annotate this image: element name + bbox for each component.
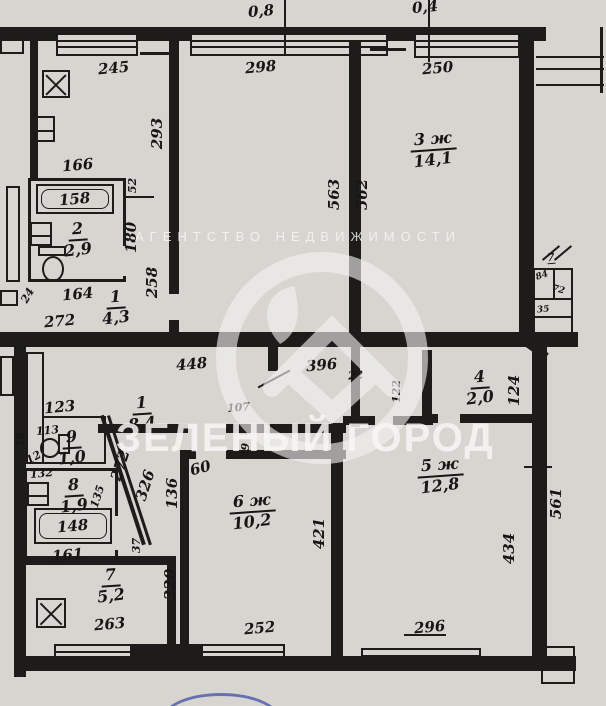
- door-opening: [114, 516, 120, 550]
- sink-symbol: [33, 116, 55, 142]
- room-label-bath-upper: 2 2,9: [58, 220, 98, 258]
- room-label-wc: 9 1,0: [52, 428, 92, 466]
- sink-symbol: [30, 222, 52, 246]
- dim-tub-upper: 158: [59, 190, 92, 208]
- dim-room6-depth: 421: [312, 518, 327, 549]
- wall-segment: [600, 27, 603, 93]
- wall-segment: [169, 40, 179, 294]
- room-label-room4: 4 2,0: [458, 368, 502, 406]
- dim-room3-depth: 562: [355, 179, 370, 210]
- wall-segment: [386, 27, 416, 41]
- dim-building-depth: 561: [549, 488, 564, 519]
- dim-kitchen2-width: 263: [93, 616, 126, 634]
- wall-segment: [180, 450, 189, 658]
- dim-room4-depth: 124: [507, 375, 522, 406]
- window: [361, 648, 481, 666]
- room-label-room3: 3 ж 14,1: [405, 130, 461, 168]
- watermark-agency-text: АГЕНТСТВО НЕДВИЖИМОСТИ: [135, 229, 461, 244]
- watermark-brand-text: ЗЕЛЕНЫЙ ГОРОД: [116, 416, 495, 461]
- dim-hall2-left: 123: [43, 399, 76, 417]
- floorplan-canvas: 158 148 0,8 0,4 245 293 166 52 180 2 2,9…: [0, 0, 606, 706]
- dim-kitchen2-depth: 220: [163, 569, 178, 600]
- shaft-line: [535, 298, 571, 300]
- dim-shaft-n3: 35: [537, 305, 550, 315]
- wall-stub: [0, 34, 24, 54]
- dim-hall-width2: 272: [43, 313, 76, 331]
- sink-symbol: [27, 482, 49, 506]
- window: [56, 33, 138, 56]
- dim-balcony-left: 0,8: [247, 3, 274, 20]
- stove-symbol: [36, 598, 66, 628]
- dim-hall-depth: 258: [145, 267, 160, 298]
- room-label-hall-upper: 1 4,3: [96, 288, 136, 326]
- dimension-tick: [124, 196, 154, 198]
- dim-room5-depth: 434: [502, 533, 517, 564]
- room-label-room6: 6 ж 10,2: [222, 492, 282, 530]
- wall-segment: [532, 347, 547, 663]
- dim-corridor-top: 60: [188, 459, 212, 479]
- dim-bath2-wall: 132: [30, 467, 54, 480]
- wall-stub: [0, 356, 14, 396]
- dim-corridor-width: 136: [165, 478, 180, 509]
- dimension-tick: [136, 338, 164, 340]
- dim-room5-width: 296: [413, 619, 446, 637]
- wall-segment: [24, 556, 176, 565]
- wall-segment: [519, 27, 534, 337]
- room-label-bath-lower: 8 1,9: [52, 476, 96, 514]
- sill-line: [536, 84, 604, 86]
- wall-segment: [30, 40, 38, 180]
- sill-line: [536, 56, 604, 58]
- dim-tub-lower: 148: [57, 517, 90, 535]
- wall-segment: [132, 644, 201, 658]
- dimension-tick: [524, 466, 552, 468]
- shaft-line: [535, 316, 571, 318]
- dim-living-depth: 563: [327, 179, 342, 210]
- dim-kitchen-opening: 166: [61, 157, 94, 175]
- dim-kitchen-width: 245: [97, 60, 130, 78]
- dim-room3-width: 250: [421, 60, 454, 78]
- dim-kitchen-depth: 293: [150, 118, 165, 149]
- duct: [6, 186, 20, 282]
- stamp: [163, 693, 279, 706]
- window: [54, 644, 132, 661]
- dim-hall2-width: 448: [175, 356, 208, 374]
- wall-stub: [0, 290, 18, 306]
- dim-kitchen2-wall: 37: [131, 538, 142, 553]
- dim-balcony-right: 0,4: [411, 0, 438, 16]
- dim-hall-nib: 24: [19, 286, 36, 305]
- bathtub-symbol: 158: [36, 184, 114, 214]
- dim-hall-width: 164: [61, 286, 94, 304]
- stove-symbol: [42, 70, 70, 98]
- dim-bath-wall: 52: [127, 178, 138, 193]
- dim-bath2-below: 161: [51, 547, 84, 565]
- dim-shaft-top: 7: [546, 252, 555, 265]
- dim-wc-nib: 19: [15, 432, 26, 447]
- window: [201, 644, 285, 661]
- dimension-tick: [370, 48, 406, 51]
- dimension-tick: [140, 52, 176, 55]
- room-label-kitchen-lower: 7 5,2: [88, 566, 134, 604]
- dim-room6-width: 252: [243, 620, 276, 638]
- dim-living-width: 298: [244, 59, 277, 77]
- wall-stub: [541, 646, 575, 684]
- sill-line: [536, 68, 604, 70]
- dimension-tick: [284, 0, 286, 56]
- wall-segment: [136, 27, 192, 41]
- dim-corridor-diag-b: 326: [134, 468, 158, 502]
